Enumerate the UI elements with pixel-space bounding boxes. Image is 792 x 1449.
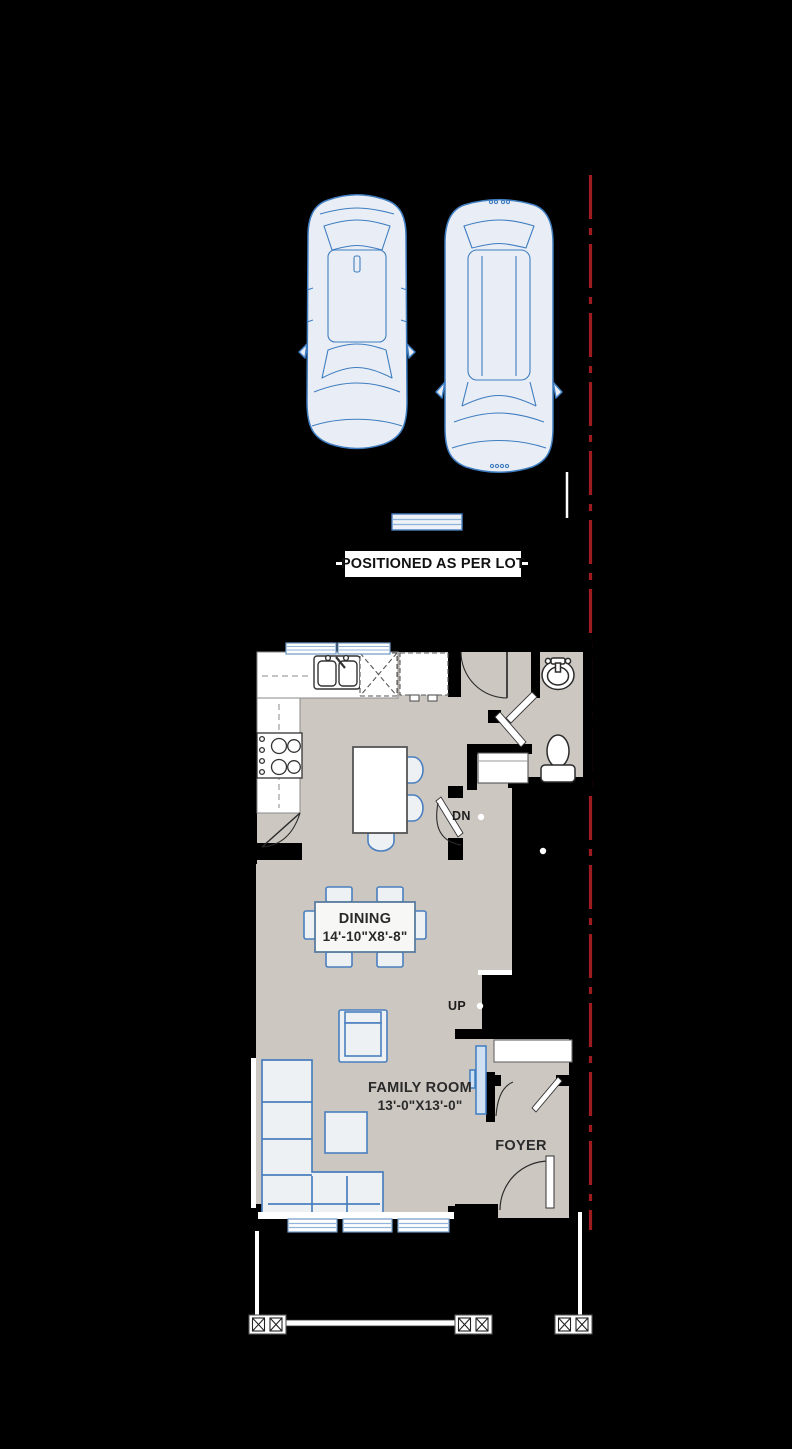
ceiling-light: [540, 848, 546, 854]
armchair: [339, 1010, 387, 1062]
island-top: [353, 747, 407, 833]
suv-mirror-right: [553, 382, 562, 398]
family-room-dimensions: 13'-0"X13'-0": [378, 1098, 463, 1114]
veranda-railing: [283, 1320, 455, 1326]
refrigerator: [400, 653, 448, 701]
label-tick-right: [522, 562, 528, 565]
label-tick-left: [336, 562, 342, 565]
family-room-label: FAMILY ROOM 13'-0"X13'-0": [350, 1080, 490, 1114]
suv-body: [445, 200, 553, 473]
veranda-column: [249, 1315, 286, 1334]
powder-room-sink: [542, 658, 574, 690]
veranda-column: [455, 1315, 492, 1334]
car-suv: [436, 200, 562, 473]
ceiling-light: [477, 1003, 483, 1009]
stairs-down-label: DN: [452, 809, 471, 823]
ceiling-light: [478, 814, 484, 820]
site-and-plan-drawing: [0, 0, 792, 1449]
left-window-band: [251, 1058, 256, 1208]
foyer-closet: [494, 1040, 572, 1062]
veranda-post-right: [578, 1212, 582, 1319]
entry-closet: [478, 753, 528, 783]
car-sedan: [299, 195, 415, 449]
front-windows: [288, 1219, 449, 1232]
stairs-up-label: UP: [448, 999, 466, 1013]
dining-room-dimensions: 14'-10"X8'-8": [323, 929, 408, 945]
sedan-body: [307, 195, 407, 449]
kitchen-window: [286, 643, 390, 654]
front-window-sill: [258, 1212, 454, 1219]
sedan-mirror-left: [299, 344, 307, 358]
parking-pad-step: [392, 514, 462, 530]
foyer-label: FOYER: [489, 1138, 553, 1156]
dining-room-label: DINING 14'-10"X8'-8": [315, 907, 415, 949]
veranda-column: [555, 1315, 592, 1334]
family-room-name: FAMILY ROOM: [368, 1080, 472, 1098]
veranda-post-left: [255, 1231, 259, 1319]
sedan-mirror-right: [407, 344, 415, 358]
range: [257, 733, 302, 778]
dishwasher: [360, 653, 397, 696]
kitchen-sink: [314, 656, 360, 689]
suv-mirror-left: [436, 382, 445, 398]
foyer-name: FOYER: [495, 1138, 546, 1156]
stair-half-wall: [478, 970, 512, 975]
floorplan-page: POSITIONED AS PER LOT DINING 14'-10"X8'-…: [0, 0, 792, 1449]
dining-room-name: DINING: [339, 911, 392, 929]
coffee-table: [325, 1112, 367, 1153]
positioned-as-per-lot-label: POSITIONED AS PER LOT: [345, 551, 521, 577]
